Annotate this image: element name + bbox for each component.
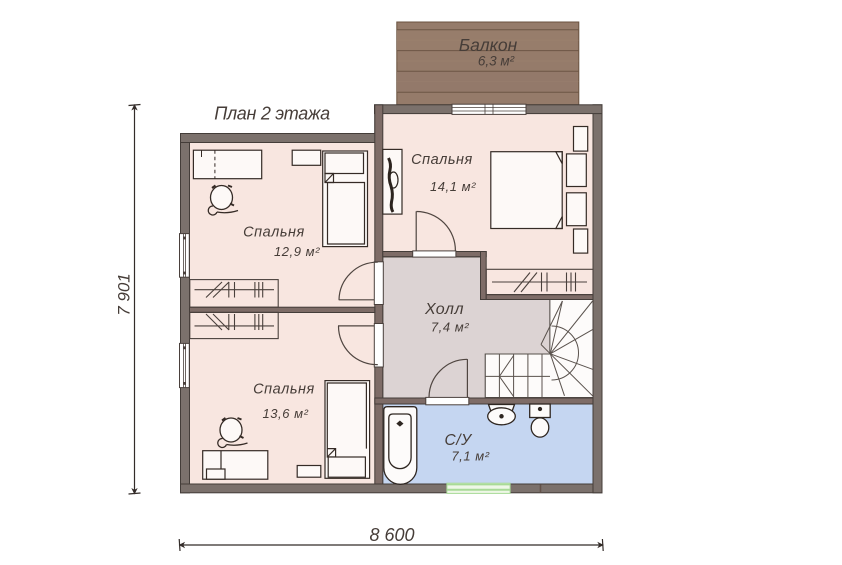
svg-text:С/У: С/У [444,432,473,449]
svg-text:8 600: 8 600 [369,525,414,545]
svg-text:Спальня: Спальня [411,152,473,168]
svg-text:14,1 м²: 14,1 м² [430,179,476,194]
svg-text:Холл: Холл [424,301,464,318]
svg-text:12,9 м²: 12,9 м² [274,244,320,259]
svg-text:7,4 м²: 7,4 м² [431,320,469,335]
svg-text:План 2 этажа: План 2 этажа [214,104,330,124]
svg-text:Балкон: Балкон [459,35,518,55]
svg-text:6,3 м²: 6,3 м² [478,54,515,69]
svg-text:13,6 м²: 13,6 м² [262,406,308,421]
svg-text:Спальня: Спальня [243,225,305,241]
svg-text:7 901: 7 901 [115,273,134,316]
svg-text:7,1 м²: 7,1 м² [451,449,489,464]
svg-text:Спальня: Спальня [253,382,315,398]
